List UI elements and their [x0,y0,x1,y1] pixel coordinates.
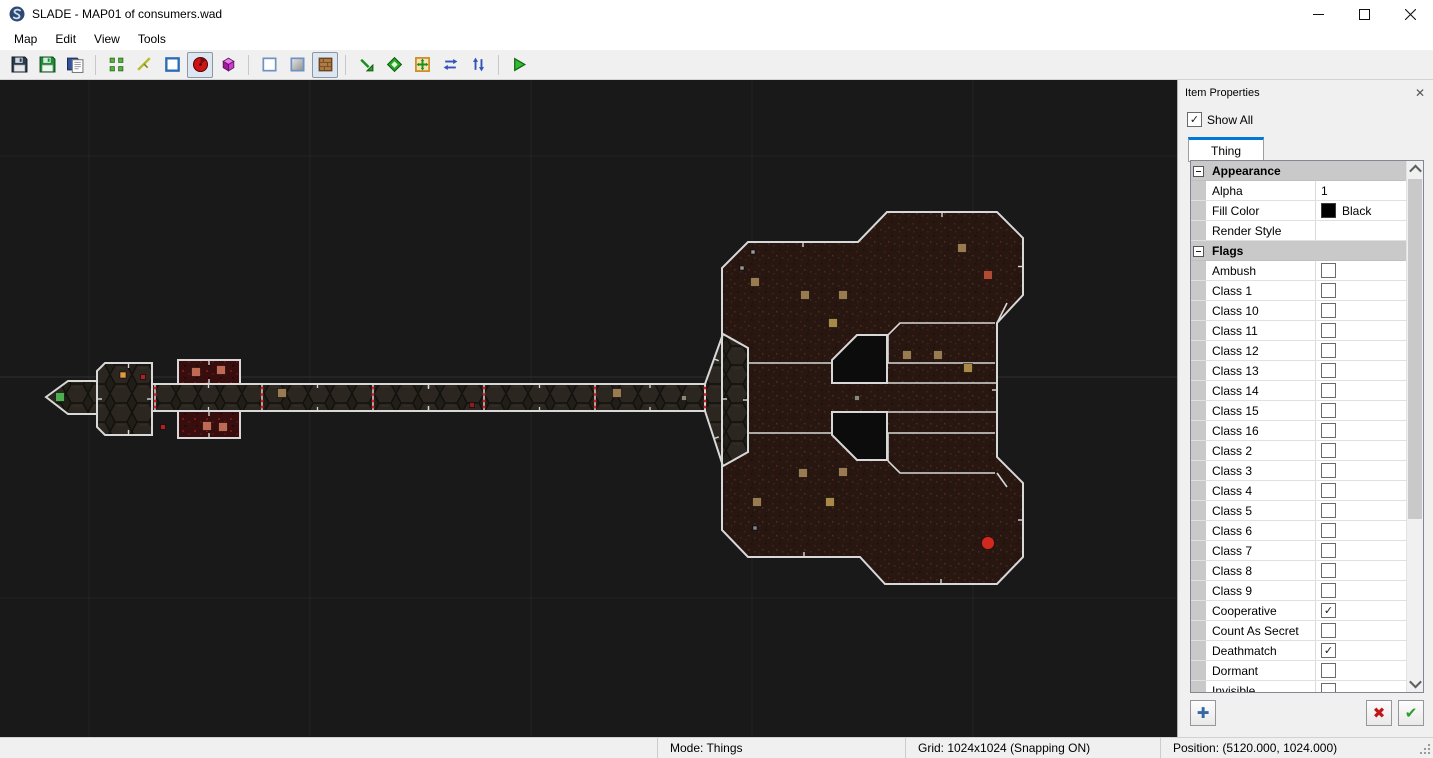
item [740,266,744,270]
row-gutter [1191,421,1206,440]
property-value[interactable] [1316,441,1406,460]
tab-thing[interactable]: Thing [1188,137,1264,162]
monster [753,498,762,507]
item-properties-panel: Item Properties ✕ ✓ Show All Thing Appea… [1177,80,1433,737]
row-gutter [1191,441,1206,460]
add-icon[interactable]: ✚ [1190,700,1216,726]
property-value[interactable]: Black [1316,201,1406,220]
mode-3d-icon[interactable] [215,52,241,78]
property-row: Class 10 [1191,301,1406,321]
property-label: Class 3 [1206,461,1316,480]
property-label: Cooperative [1206,601,1316,620]
property-row: Class 8 [1191,561,1406,581]
show-all-checkbox[interactable]: ✓ [1187,112,1202,127]
property-value[interactable] [1316,541,1406,560]
property-label: Class 11 [1206,321,1316,340]
player-start [56,393,65,402]
property-row: Invisible [1191,681,1406,693]
status-grid: Grid: 1024x1024 (Snapping ON) [905,738,1160,758]
sectors-mode-icon[interactable] [159,52,185,78]
apply-icon[interactable]: ✔ [1398,700,1424,726]
property-label: Class 14 [1206,381,1316,400]
toolbar-separator [248,55,249,75]
monster [217,366,226,375]
minimize-icon[interactable] [1295,0,1341,28]
row-gutter [1191,341,1206,360]
property-row: Cooperative✓ [1191,601,1406,621]
menu-view[interactable]: View [85,29,129,49]
row-gutter [1191,541,1206,560]
property-label: Fill Color [1206,201,1316,220]
property-value[interactable] [1316,461,1406,480]
monster [219,423,228,432]
property-value[interactable] [1316,401,1406,420]
monster [964,364,973,373]
property-value[interactable] [1316,281,1406,300]
property-label: Class 4 [1206,481,1316,500]
toolbar-separator [95,55,96,75]
draw-lines-icon[interactable] [353,52,379,78]
cacodemon [982,537,995,550]
slade-app-icon [9,6,25,22]
row-gutter [1191,301,1206,320]
property-label: Ambush [1206,261,1316,280]
save-icon[interactable] [6,52,32,78]
scrollbar-thumb[interactable] [1408,179,1422,519]
property-value[interactable] [1316,681,1406,693]
flag-checkbox[interactable] [1321,463,1336,478]
property-row: Class 11 [1191,321,1406,341]
monster [984,271,993,280]
flag-checkbox[interactable] [1321,263,1336,278]
decoration [470,403,475,408]
color-swatch[interactable] [1321,203,1336,218]
monster [278,389,287,398]
row-gutter [1191,261,1206,280]
flag-checkbox[interactable] [1321,283,1336,298]
property-label: Dormant [1206,661,1316,680]
property-value[interactable] [1316,381,1406,400]
mirror-x-icon[interactable] [437,52,463,78]
property-label: Class 15 [1206,401,1316,420]
grid-scrollbar[interactable] [1406,161,1423,692]
property-value[interactable]: ✓ [1316,641,1406,660]
property-label: Class 10 [1206,301,1316,320]
row-gutter [1191,221,1206,240]
property-row: Class 14 [1191,381,1406,401]
row-gutter[interactable] [1191,161,1206,180]
property-row: Alpha1 [1191,181,1406,201]
title-bar: SLADE - MAP01 of consumers.wad [0,0,1433,28]
monster [934,351,943,360]
property-row: Class 6 [1191,521,1406,541]
item [751,250,755,254]
property-value[interactable] [1316,321,1406,340]
flag-checkbox[interactable] [1321,423,1336,438]
property-row: Count As Secret [1191,621,1406,641]
flag-checkbox[interactable] [1321,583,1336,598]
property-row: Class 9 [1191,581,1406,601]
row-gutter [1191,461,1206,480]
decoration [141,375,146,380]
weapon [682,396,687,401]
property-row: Class 7 [1191,541,1406,561]
object-edit-icon[interactable] [409,52,435,78]
draw-shape-icon[interactable] [381,52,407,78]
row-gutter [1191,621,1206,640]
row-gutter [1191,401,1206,420]
flag-checkbox[interactable] [1321,523,1336,538]
property-label: Flags [1206,241,1243,260]
property-group-row: Flags [1191,241,1406,261]
row-gutter [1191,321,1206,340]
property-label: Count As Secret [1206,621,1316,640]
row-gutter[interactable] [1191,241,1206,260]
monster [751,278,760,287]
flag-checkbox[interactable] [1321,483,1336,498]
property-value[interactable]: 1 [1316,181,1406,200]
property-value[interactable] [1316,301,1406,320]
scroll-up-icon[interactable] [1407,161,1423,178]
monster [799,469,808,478]
flag-checkbox[interactable] [1321,383,1336,398]
decoration [161,425,166,430]
toolbar-separator [345,55,346,75]
row-gutter [1191,641,1206,660]
property-value[interactable] [1316,361,1406,380]
property-row: Class 13 [1191,361,1406,381]
flag-checkbox[interactable] [1321,543,1336,558]
property-label: Invisible [1206,681,1316,693]
export-map-icon[interactable] [62,52,88,78]
flag-checkbox[interactable] [1321,363,1336,378]
property-row: Class 5 [1191,501,1406,521]
show-all-label: Show All [1207,113,1253,127]
toolbar-separator [498,55,499,75]
status-mode: Mode: Things [657,738,905,758]
close-icon[interactable] [1387,0,1433,28]
property-row: Class 16 [1191,421,1406,441]
row-gutter [1191,361,1206,380]
menu-bar: MapEditViewTools [0,28,1433,50]
row-gutter [1191,521,1206,540]
property-value[interactable] [1316,421,1406,440]
row-gutter [1191,581,1206,600]
flag-checkbox[interactable]: ✓ [1321,643,1336,658]
resize-grip[interactable] [1419,744,1431,756]
flat-view-icon[interactable] [284,52,310,78]
property-label: Alpha [1206,181,1316,200]
monster [801,291,810,300]
property-row: Deathmatch✓ [1191,641,1406,661]
property-row: Dormant [1191,661,1406,681]
mirror-y-icon[interactable] [465,52,491,78]
flag-checkbox[interactable] [1321,503,1336,518]
property-row: Class 4 [1191,481,1406,501]
flag-checkbox[interactable] [1321,303,1336,318]
property-value[interactable] [1316,521,1406,540]
row-gutter [1191,681,1206,693]
flag-checkbox[interactable] [1321,443,1336,458]
collapse-icon[interactable] [1193,246,1204,257]
collapse-icon[interactable] [1193,166,1204,177]
save-as-icon[interactable] [34,52,60,78]
property-value[interactable] [1316,481,1406,500]
property-value[interactable] [1316,261,1406,280]
main-hall [722,212,1023,584]
property-value[interactable] [1316,621,1406,640]
monster [829,319,838,328]
vertices-mode-icon[interactable] [103,52,129,78]
flag-checkbox[interactable] [1321,683,1336,693]
monster [839,291,848,300]
menu-map[interactable]: Map [5,29,46,49]
show-all-row: ✓ Show All [1187,112,1433,127]
row-gutter [1191,501,1206,520]
row-gutter [1191,601,1206,620]
weapon [855,396,860,401]
property-row: Ambush [1191,261,1406,281]
property-label: Appearance [1206,161,1281,180]
monster [839,468,848,477]
row-gutter [1191,281,1206,300]
property-label: Deathmatch [1206,641,1316,660]
things-mode-icon[interactable] [187,52,213,78]
property-label: Class 12 [1206,341,1316,360]
property-value[interactable] [1316,661,1406,680]
toolbar [0,50,1433,80]
flag-checkbox[interactable]: ✓ [1321,603,1336,618]
maximize-icon[interactable] [1341,0,1387,28]
wireframe-view-icon[interactable] [256,52,282,78]
window-title: SLADE - MAP01 of consumers.wad [32,7,222,21]
panel-close-icon[interactable]: ✕ [1415,86,1425,100]
property-label: Class 8 [1206,561,1316,580]
row-gutter [1191,201,1206,220]
row-gutter [1191,481,1206,500]
monster [203,422,212,431]
menu-tools[interactable]: Tools [129,29,175,49]
monster [192,368,201,377]
status-empty [0,738,657,758]
property-label: Class 9 [1206,581,1316,600]
property-row: Render Style [1191,221,1406,241]
property-row: Class 1 [1191,281,1406,301]
flag-checkbox[interactable] [1321,623,1336,638]
panel-title: Item Properties [1185,87,1260,99]
property-group-row: Appearance [1191,161,1406,181]
property-row: Class 15 [1191,401,1406,421]
flag-checkbox[interactable] [1321,323,1336,338]
property-label: Class 7 [1206,541,1316,560]
row-gutter [1191,181,1206,200]
property-grid: AppearanceAlpha1Fill ColorBlackRender St… [1190,160,1424,693]
row-gutter [1191,381,1206,400]
property-row: Class 2 [1191,441,1406,461]
status-bar: Mode: Things Grid: 1024x1024 (Snapping O… [0,737,1433,758]
property-label: Render Style [1206,221,1316,240]
property-value[interactable] [1316,221,1406,240]
property-value[interactable]: ✓ [1316,601,1406,620]
scroll-down-icon[interactable] [1407,675,1423,692]
candelabra [120,372,126,378]
status-position: Position: (5120.000, 1024.000) [1160,738,1433,758]
flag-checkbox[interactable] [1321,663,1336,678]
property-value[interactable] [1316,561,1406,580]
property-label: Class 5 [1206,501,1316,520]
run-map-icon[interactable] [506,52,532,78]
lines-mode-icon[interactable] [131,52,157,78]
monster [958,244,967,253]
row-gutter [1191,561,1206,580]
item [753,526,757,530]
panel-header: Item Properties ✕ [1178,80,1433,104]
monster [613,389,622,398]
monster [826,498,835,507]
flag-checkbox[interactable] [1321,403,1336,418]
menu-edit[interactable]: Edit [46,29,85,49]
row-gutter [1191,661,1206,680]
cancel-icon[interactable]: ✖ [1366,700,1392,726]
property-label: Class 6 [1206,521,1316,540]
property-row: Class 12 [1191,341,1406,361]
property-value[interactable] [1316,341,1406,360]
property-label: Class 1 [1206,281,1316,300]
map-canvas[interactable] [0,80,1177,737]
flag-checkbox[interactable] [1321,343,1336,358]
property-label: Class 2 [1206,441,1316,460]
property-row: Class 3 [1191,461,1406,481]
property-row: Fill ColorBlack [1191,201,1406,221]
property-label: Class 13 [1206,361,1316,380]
monster [903,351,912,360]
property-label: Class 16 [1206,421,1316,440]
tab-row: Thing [1188,137,1433,162]
textured-view-icon[interactable] [312,52,338,78]
property-value[interactable] [1316,581,1406,600]
property-value[interactable] [1316,501,1406,520]
flag-checkbox[interactable] [1321,563,1336,578]
